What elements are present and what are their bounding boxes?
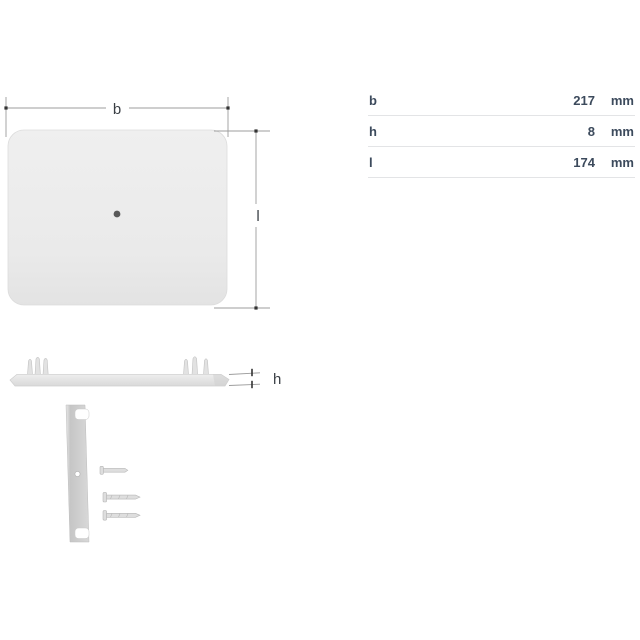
dim-unit: mm: [608, 155, 634, 170]
plate-profile-end-shade: [213, 374, 229, 386]
technical-drawing: b l: [0, 0, 320, 560]
clip-pins-right: [184, 357, 209, 375]
screw-long-1: [103, 492, 140, 502]
screw-short: [100, 466, 128, 474]
dimension-h-label: h: [273, 371, 281, 388]
bracket-hole: [75, 471, 80, 476]
dim-unit: mm: [608, 124, 634, 139]
dimension-h: h: [229, 369, 281, 388]
dim-name: b: [369, 93, 573, 108]
plate-profile: [10, 374, 229, 386]
center-hole-dot: [114, 211, 121, 218]
clip-pins-left: [28, 357, 49, 375]
screw-long-2: [103, 511, 140, 521]
dimensions-table: b 217 mm h 8 mm l 174 mm: [368, 85, 635, 178]
dim-unit: mm: [608, 93, 634, 108]
dim-name: h: [369, 124, 588, 139]
table-row-h: h 8 mm: [368, 116, 635, 147]
table-row-b: b 217 mm: [368, 85, 635, 116]
dimension-b-label: b: [113, 101, 121, 118]
cover-plate: [8, 130, 227, 305]
top-view: [8, 130, 227, 305]
table-row-l: l 174 mm: [368, 147, 635, 178]
dim-value: 217: [573, 93, 595, 108]
bracket-bottom-notch: [75, 528, 89, 539]
mounting-parts: [66, 405, 140, 542]
product-drawing-page: b l: [0, 0, 640, 640]
side-view: [10, 357, 229, 386]
bracket-top-notch: [75, 409, 89, 420]
dim-value: 8: [588, 124, 595, 139]
dimension-l-label: l: [256, 208, 259, 225]
dim-value: 174: [573, 155, 595, 170]
dim-name: l: [369, 155, 573, 170]
